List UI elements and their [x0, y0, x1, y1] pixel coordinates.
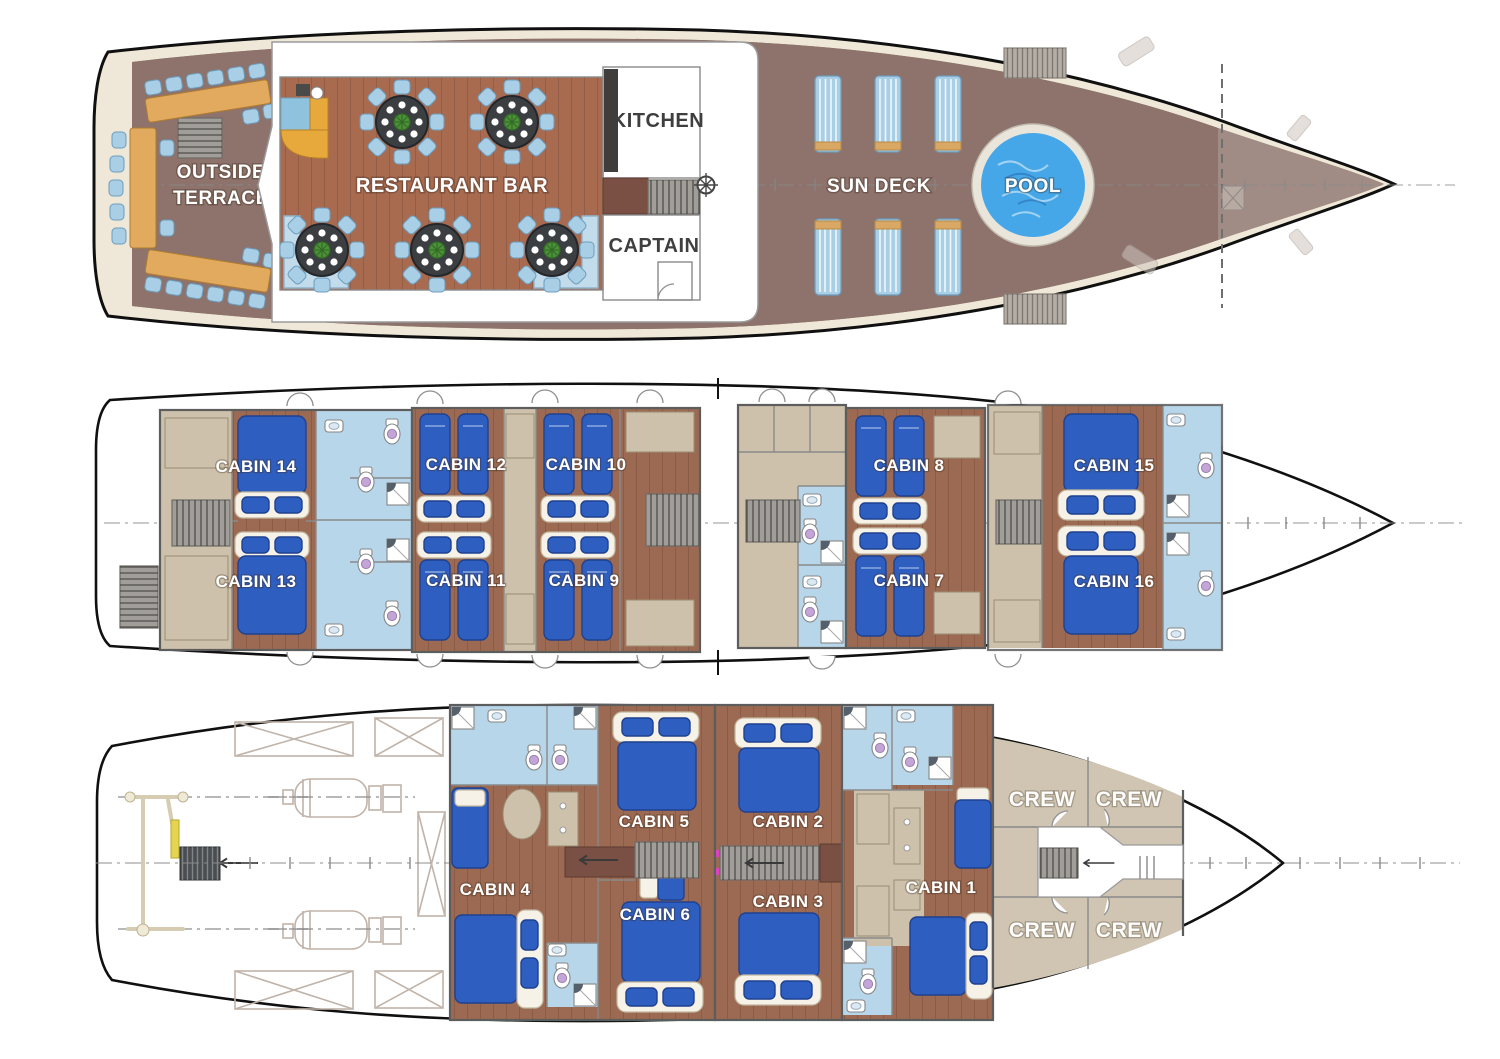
cabin-14-label: CABIN 14 — [216, 457, 297, 476]
cabin-5-label: CABIN 5 — [619, 812, 690, 831]
crew-label-1: CREW — [1009, 788, 1075, 811]
cabin-4-label: CABIN 4 — [460, 880, 531, 899]
block-a-stair-landing — [565, 847, 635, 877]
restaurant-bar-label: RESTAURANT BAR — [356, 175, 548, 197]
crew-quarters: CREW CREW CREW CREW — [993, 738, 1183, 988]
cabin-2-bed — [735, 718, 821, 812]
crew-label-2: CREW — [1096, 788, 1162, 811]
cabin-15-label: CABIN 15 — [1074, 456, 1155, 475]
cabin-block-fore: CABIN 15 CABIN 16 — [988, 405, 1222, 650]
cabin-11-label: CABIN 11 — [426, 571, 506, 590]
cabin-9-label: CABIN 9 — [549, 571, 620, 590]
deck-plan-drawing: OUTSIDE TERRACE RESTAURANT BAR — [0, 0, 1500, 1059]
cabin-block-1: CABIN 1 — [842, 705, 993, 1020]
yacht-deck-plan: OUTSIDE TERRACE RESTAURANT BAR — [0, 0, 1500, 1059]
cabin-block-mid: CABIN 12 CABIN 11 CABIN 10 CABIN 9 — [412, 408, 700, 652]
stair-landing — [603, 178, 648, 214]
crew-label-3: CREW — [1009, 919, 1075, 942]
cabin-8-label: CABIN 8 — [874, 456, 945, 475]
cabin-3-label: CABIN 3 — [753, 892, 824, 911]
pool: POOL — [972, 124, 1094, 246]
cabin-block-87: CABIN 8 CABIN 7 — [846, 408, 985, 648]
cabin-block-456: CABIN 5 CABIN 4 CABIN 6 — [450, 705, 715, 1020]
outside-terrace-label-line2: TERRACE — [173, 188, 269, 209]
cabin-10-label: CABIN 10 — [546, 455, 627, 474]
main-deck: OUTSIDE TERRACE RESTAURANT BAR — [94, 29, 1455, 340]
cabin-block-aft: CABIN 14 CABIN 13 — [160, 410, 412, 650]
bow-deck-highlight — [1218, 128, 1384, 240]
cabin-13-label: CABIN 13 — [216, 572, 297, 591]
lower-deck: CABIN 5 CABIN 4 CABIN 6 CABIN 2 CABIN 3 — [96, 705, 1460, 1021]
crew-label-4: CREW — [1096, 919, 1162, 942]
cabin-6-label: CABIN 6 — [620, 905, 691, 924]
pool-label: POOL — [1005, 176, 1061, 197]
bar-sink — [311, 87, 323, 99]
cabin-1-label: CABIN 1 — [906, 878, 977, 897]
cabin-2-label: CABIN 2 — [753, 812, 824, 831]
cabin-5-bed — [613, 712, 699, 810]
kitchen-label: KITCHEN — [612, 110, 704, 132]
cabin-16-label: CABIN 16 — [1074, 572, 1155, 591]
cabin-3-bed — [735, 913, 821, 1005]
sun-deck-label: SUN DECK — [827, 176, 931, 197]
captain-label: CAPTAIN — [609, 235, 700, 257]
cabin-7-label: CABIN 7 — [874, 571, 945, 590]
cabin-deck-lobby — [738, 405, 846, 648]
cabin-deck: CABIN 14 CABIN 13 CABIN 12 — [96, 378, 1466, 675]
cabin-12-label: CABIN 12 — [426, 455, 507, 474]
outside-terrace-label-line1: OUTSIDE — [177, 162, 266, 183]
cabin-block-23: CABIN 2 CABIN 3 — [715, 705, 844, 1020]
main-superstructure: RESTAURANT BAR KITCHEN CAPTAIN — [258, 42, 758, 322]
